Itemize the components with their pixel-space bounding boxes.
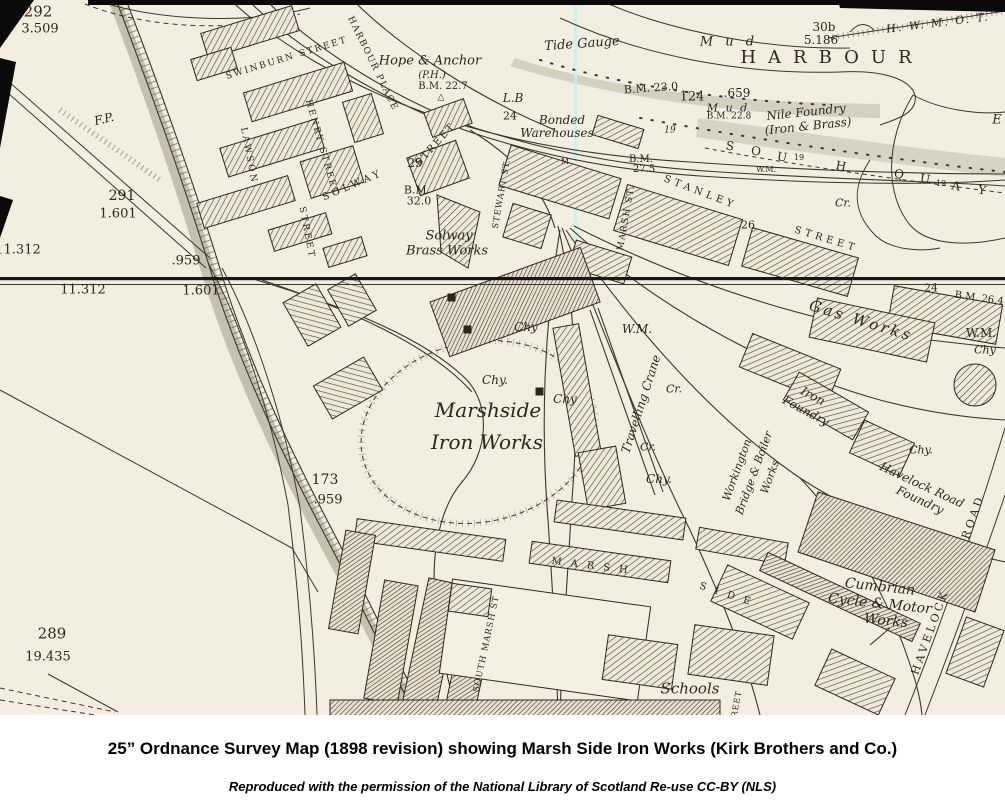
map-label-l-b: L.B	[503, 92, 524, 104]
map-label-h: H	[835, 159, 847, 173]
map-label-works: Works	[863, 612, 908, 631]
map-label-y: Y	[977, 183, 987, 196]
map-label-mark: △	[438, 94, 445, 103]
map-label-292: 292	[24, 5, 53, 20]
map-label-f-p: F.P.	[93, 111, 115, 127]
map-label-chy: Chy.	[482, 374, 508, 386]
map-label-11-312: 11.312	[0, 244, 41, 257]
map-label-chy: Chy	[514, 321, 538, 333]
map-label-iron-works: Iron Works	[431, 432, 543, 452]
map-label-hope-anchor: Hope & Anchor	[379, 55, 481, 68]
map-label-street: STREET	[793, 226, 859, 255]
map-label-32-0: 32.0	[407, 196, 432, 207]
map-label-chy: Chy	[974, 345, 996, 356]
map-label-959: .959	[314, 494, 343, 507]
map-label-stewart-st: STEWART ST.	[492, 158, 513, 229]
map-label-lawson: LAWSON	[238, 127, 258, 185]
map-label-bonded: Bonded	[539, 114, 585, 126]
map-label-w-m: W.M.	[756, 166, 776, 174]
map-label-19: 19	[936, 180, 946, 188]
map-label-29: 29	[407, 157, 422, 169]
map-label-b-m-22-8: B.M. 22.8	[707, 113, 751, 122]
map-label-19: 19	[664, 127, 675, 136]
map-label-south-marsh-st: SOUTH MARSH ST	[473, 595, 502, 693]
map-label-24: 24	[924, 283, 938, 294]
map-label-swinburn-street: SWINBURN STREET	[225, 36, 349, 82]
map-label-cr: Cr.	[640, 442, 656, 453]
map-label-w-m: W.M.	[622, 323, 652, 335]
map-label-26: 26	[741, 220, 755, 231]
caption-title: 25” Ordnance Survey Map (1898 revision) …	[0, 715, 1005, 759]
map-label-stanley: STANLEY	[662, 174, 738, 211]
map-label-291: 291	[109, 189, 136, 203]
map-label-schools: Schools	[661, 682, 720, 697]
caption-band: 25” Ordnance Survey Map (1898 revision) …	[0, 715, 1005, 806]
map-label-u: U	[776, 150, 788, 164]
map-label-1-601: 1.601	[182, 285, 219, 298]
map-label-27-5: 27.5	[633, 165, 655, 175]
map-labels-layer: 2923.509F.P.2911.60111.312.95911.3121.60…	[0, 0, 1005, 715]
map-label-11-312: 11.312	[60, 284, 106, 297]
map-label-173: 173	[312, 473, 339, 487]
map-label-124: 124	[680, 91, 705, 104]
map-label-b-m-23-0: B.M. 23.0	[624, 81, 679, 96]
map-label-brass-works: Brass Works	[406, 245, 488, 258]
map-label-harbour: HARBOUR	[740, 49, 923, 67]
map-label-30b: 30b	[813, 21, 836, 33]
map-label-19: 19	[794, 154, 804, 162]
map-label-travelling-crane: Travelling Crane	[619, 353, 662, 454]
map-label-u: U	[919, 172, 931, 186]
map-label-marsh: MARSH	[551, 557, 637, 577]
map-label-b-m-22-7: B.M. 22.7	[418, 82, 467, 92]
map-label-gas-works: Gas Works	[807, 298, 914, 344]
map-label-m: M	[561, 158, 569, 166]
map-label-street: STREET	[297, 206, 316, 260]
map-label-3-509: 3.509	[21, 23, 58, 36]
map-label-959: .959	[172, 255, 201, 268]
map-label-h-w-m-o-t: H. W. M. O. T.	[886, 11, 990, 35]
map-label-o: O	[750, 144, 762, 158]
map-label-q: Q	[893, 167, 905, 181]
map-label-659: .659	[724, 87, 751, 99]
map-label-henry-street: HENRY STREET	[303, 99, 339, 197]
screenshot-root: { "image_type": "historical-ordnance-sur…	[0, 0, 1005, 806]
map-label-1-601: 1.601	[99, 208, 136, 221]
caption-credit: Reproduced with the permission of the Na…	[0, 759, 1005, 794]
map-label-tide-gauge: Tide Gauge	[544, 35, 620, 53]
map-label-p-h: (P.H.)	[418, 71, 446, 81]
map-image: 2923.509F.P.2911.60111.312.95911.3121.60…	[0, 0, 1005, 715]
map-label-5-186: 5.186	[804, 34, 838, 46]
map-label-side: SIDE	[698, 582, 760, 611]
map-label-cr: Cr.	[666, 384, 682, 395]
map-label-a: A	[951, 179, 962, 192]
map-label-cr: Cr.	[835, 198, 851, 209]
map-label-b-m-26-4: B.M. 26.4	[954, 291, 1004, 308]
map-label-w-m: W.M.	[966, 327, 996, 339]
map-label-chy: Chy.	[646, 473, 672, 485]
map-label-24: 24	[503, 111, 517, 122]
map-label-solway: Solway	[425, 230, 472, 243]
map-label-19-435: 19.435	[25, 651, 71, 664]
map-label-reet: REET	[731, 690, 744, 715]
map-label-chy: Chy.	[909, 445, 933, 456]
map-label-e: E	[992, 114, 1002, 127]
map-label-s: S	[725, 139, 735, 152]
map-label-marshside: Marshside	[435, 400, 541, 420]
map-label-chy: Chy	[553, 393, 577, 405]
map-label-marsh-st: MARSH ST.	[617, 184, 637, 251]
map-label-289: 289	[38, 627, 67, 642]
map-label-warehouses: Warehouses	[520, 127, 593, 139]
